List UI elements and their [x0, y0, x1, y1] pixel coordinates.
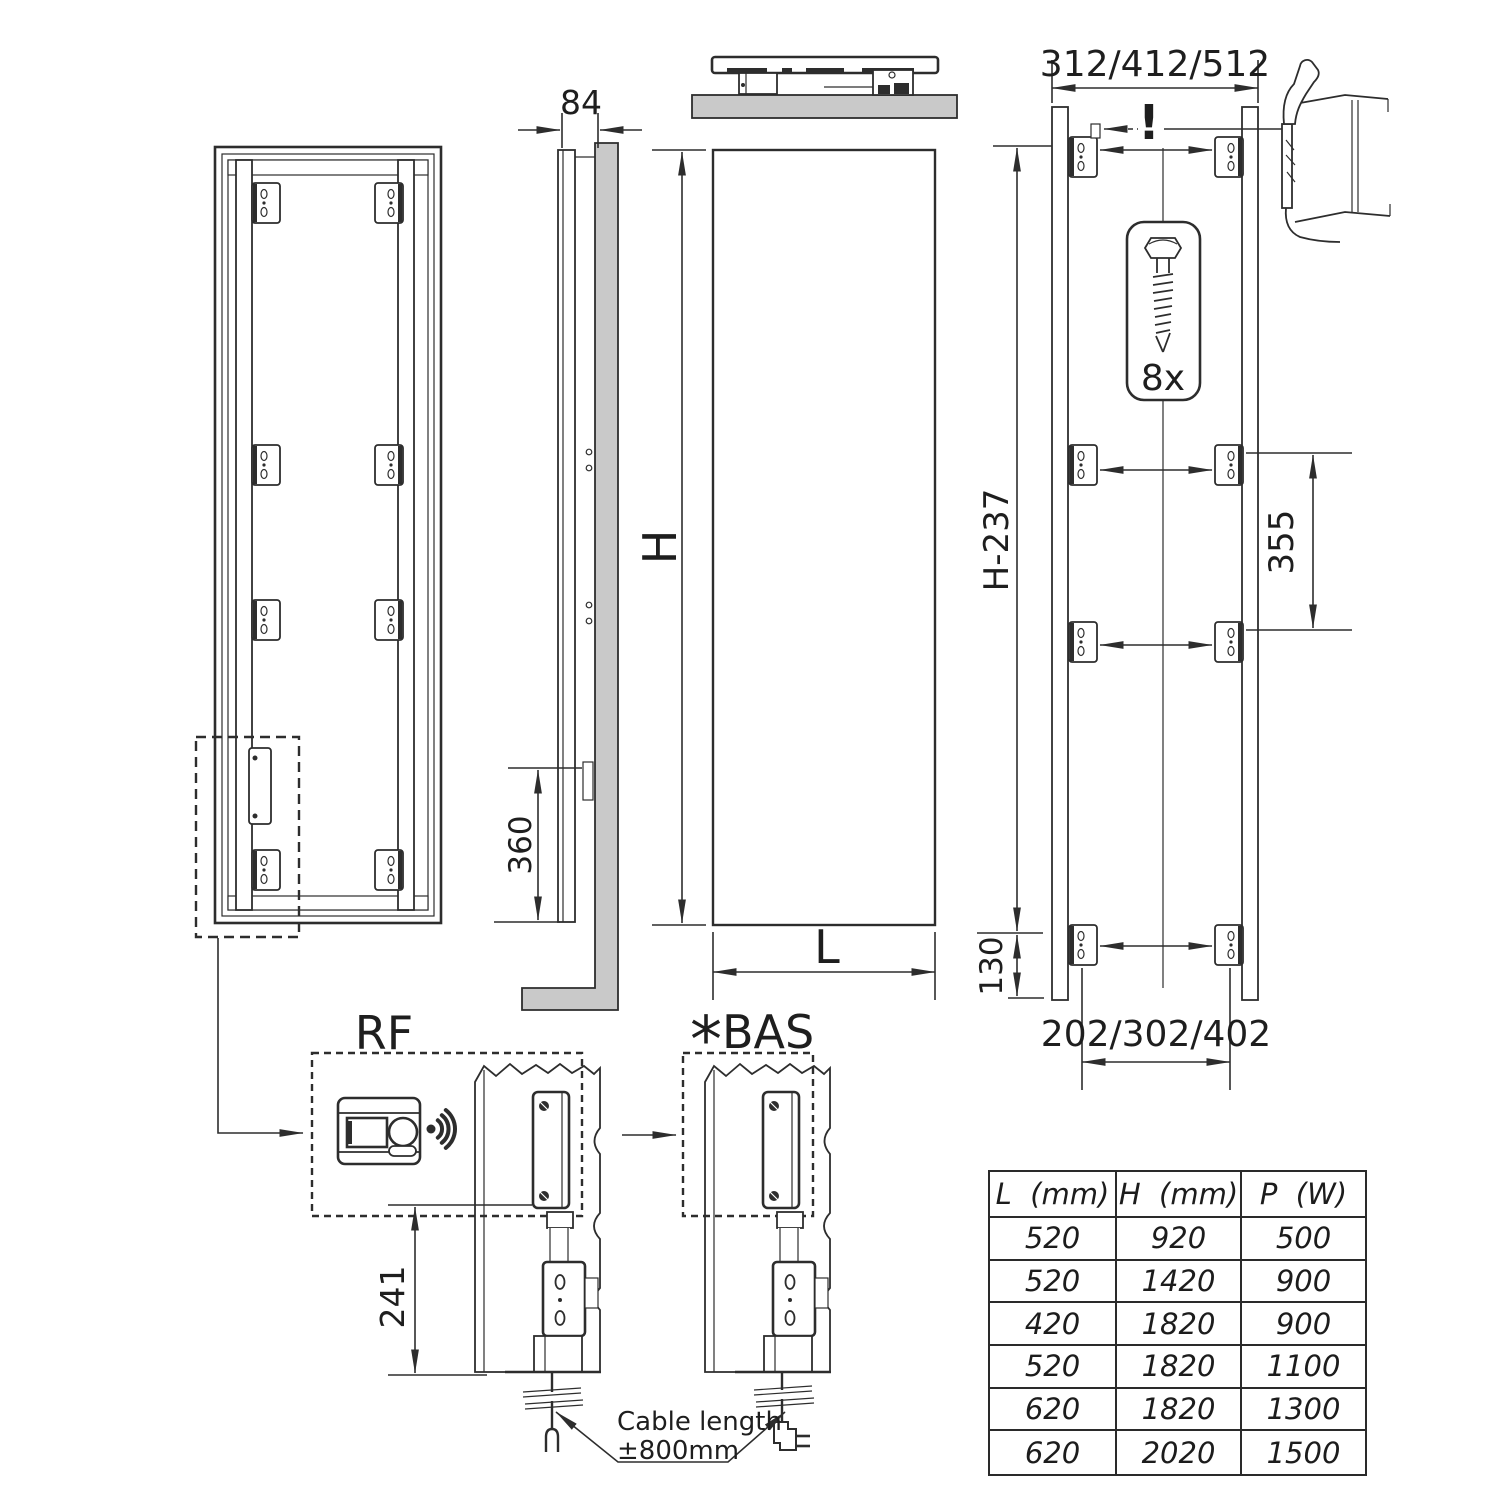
dim-mid-hole-spacing-label: 355	[1262, 510, 1302, 575]
wireless-signal-icon	[427, 1110, 456, 1148]
template-right-rail	[1242, 107, 1258, 1000]
panel-outline	[713, 150, 935, 925]
spec-cell: 900	[1242, 1261, 1365, 1304]
spec-cell: 1300	[1242, 1389, 1365, 1432]
cable-note-line2: ±800mm	[617, 1436, 739, 1466]
spec-cell: 520	[990, 1346, 1117, 1389]
dim-bracket-extent: H-237	[977, 146, 1052, 933]
front-outline-view: H L	[633, 150, 935, 1000]
dim-bottom-hole-spacing: 202/302/402	[1041, 968, 1271, 1090]
screw-count-label: 8x	[1141, 358, 1185, 399]
bas-label: BAS	[722, 1005, 814, 1059]
dim-module-height: 241	[373, 1205, 532, 1375]
bas-star: *	[690, 1004, 722, 1078]
spec-header-L: L (mm)	[990, 1172, 1117, 1218]
cable-note-line1: Cable length	[617, 1407, 782, 1437]
spec-cell: 1100	[1242, 1346, 1365, 1389]
spec-cell: 920	[1117, 1218, 1242, 1261]
screw-callout: 8x	[1127, 222, 1200, 400]
spec-table: L (mm) H (mm) P (W) 520 920 500 520 1420…	[988, 1170, 1367, 1476]
spec-cell: 620	[990, 1389, 1117, 1432]
warning-mark: !	[1138, 95, 1160, 151]
dim-bracket-extent-label: H-237	[977, 489, 1017, 592]
dim-depth-label: 84	[560, 83, 602, 122]
template-left-rail	[1052, 107, 1068, 1000]
right-rail	[398, 160, 414, 910]
callout-leader	[218, 938, 303, 1133]
mounting-template-view: 312/412/512 !	[974, 44, 1390, 1090]
spec-cell: 1820	[1117, 1303, 1242, 1346]
spec-cell: 520	[990, 1218, 1117, 1261]
bracket-hook-detail	[1282, 60, 1390, 242]
rear-view	[196, 147, 441, 1133]
spec-header-H: H (mm)	[1117, 1172, 1242, 1218]
bare-wire-icon	[546, 1429, 558, 1452]
spec-cell: 520	[990, 1261, 1117, 1304]
dim-bottom-offset-label: 130	[974, 936, 1010, 995]
spec-cell: 900	[1242, 1303, 1365, 1346]
spec-cell: 1500	[1242, 1431, 1365, 1474]
spec-cell: 500	[1242, 1218, 1365, 1261]
spec-cell: 1820	[1117, 1346, 1242, 1389]
dim-height: H	[633, 150, 706, 925]
spec-cell: 2020	[1117, 1431, 1242, 1474]
bas-column-section	[705, 1064, 831, 1372]
dim-bottom-offset: 130	[974, 935, 1044, 998]
dim-width-label: L	[814, 920, 840, 974]
dim-depth: 84	[518, 83, 642, 148]
spec-cell: 1420	[1117, 1261, 1242, 1304]
wall-section	[692, 95, 957, 118]
side-view: 84 360	[494, 83, 642, 1010]
control-module	[249, 748, 271, 824]
spec-header-P: P (W)	[1242, 1172, 1365, 1218]
cable-gland	[583, 762, 593, 800]
dim-bottom-hole-spacing-label: 202/302/402	[1041, 1014, 1271, 1055]
thermostat-icon	[338, 1098, 420, 1164]
plan-view	[692, 57, 957, 118]
spec-cell: 420	[990, 1303, 1117, 1346]
dim-top-hole-spacing-label: 312/412/512	[1040, 44, 1270, 85]
rf-cable	[523, 1372, 583, 1452]
radiator-side	[558, 150, 575, 922]
installation-diagram: { "labels": { "rf": "RF", "bas_star": "*…	[0, 0, 1500, 1500]
rf-detail: RF 241	[312, 1006, 676, 1452]
dim-mid-hole-spacing: 355	[1246, 453, 1352, 630]
dim-module-height-label: 241	[373, 1266, 412, 1329]
spec-cell: 1820	[1117, 1389, 1242, 1432]
dim-cable-exit-label: 360	[503, 815, 539, 874]
dim-height-label: H	[633, 530, 687, 565]
dim-width: L	[713, 920, 935, 1000]
bas-detail: * BAS	[683, 1004, 831, 1450]
plan-bracket-left	[739, 73, 777, 94]
cable-note: Cable length ±800mm	[556, 1407, 785, 1466]
spec-cell: 620	[990, 1431, 1117, 1474]
